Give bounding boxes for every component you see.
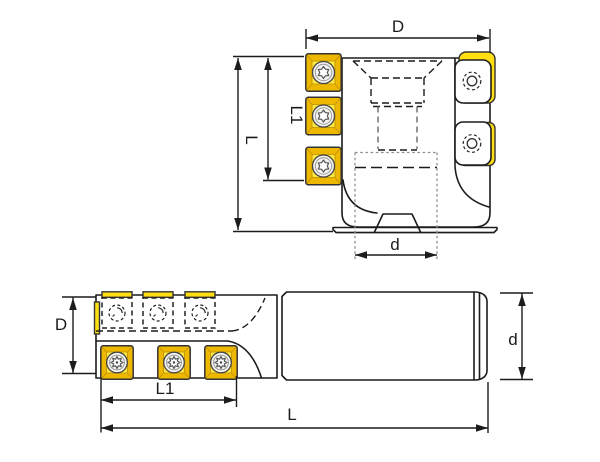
dimension-D-top-view: D: [306, 17, 490, 53]
dimension-L1-top-view: L1: [263, 58, 306, 181]
bottom-flange: [333, 228, 497, 233]
dim-label-D: D: [55, 315, 67, 334]
carbide-insert: [306, 97, 341, 134]
insert-pocket-top: [455, 52, 495, 103]
carbide-insert: [101, 346, 133, 379]
carbide-insert: [306, 147, 341, 184]
end-mill-drawing: D L L1 d: [0, 0, 600, 462]
carbide-insert: [306, 54, 341, 91]
dimension-D-side-view: D: [55, 297, 96, 374]
carbide-insert: [158, 346, 190, 379]
dim-label-L1: L1: [287, 106, 306, 125]
dim-label-D: D: [392, 17, 404, 36]
technical-drawing-canvas: D L L1 d: [0, 0, 600, 462]
carbide-insert: [205, 346, 237, 379]
dim-label-d: d: [390, 235, 399, 254]
dimension-L1-side-view: L1: [101, 376, 237, 433]
dimension-d-side-view: d: [500, 293, 533, 380]
dim-label-L1: L1: [156, 379, 175, 398]
insert-pocket-bottom: [455, 122, 495, 166]
dim-label-L: L: [287, 405, 296, 424]
shank: [282, 292, 487, 380]
dim-label-d: d: [508, 330, 517, 349]
bottom-view: D L1 L d: [55, 292, 533, 433]
top-view: D L L1 d: [233, 17, 497, 261]
dim-label-L: L: [242, 135, 261, 144]
